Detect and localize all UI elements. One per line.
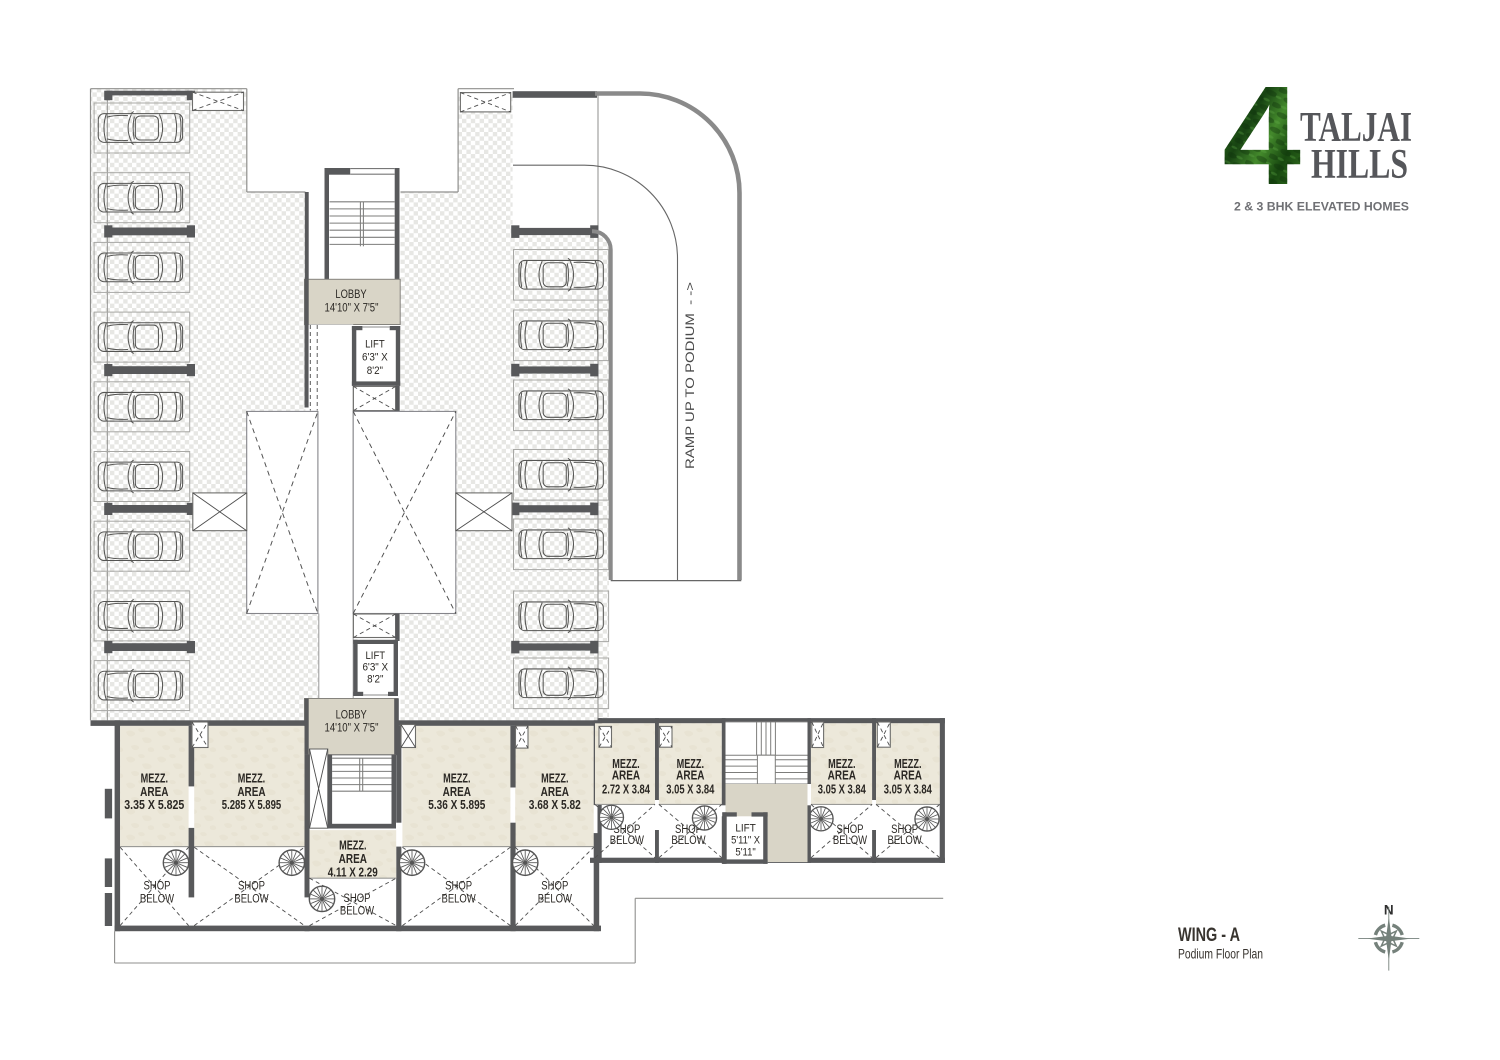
svg-text:4: 4 — [1223, 56, 1301, 214]
svg-text:5.285 X 5.895: 5.285 X 5.895 — [222, 798, 281, 812]
svg-text:2.72 X 3.84: 2.72 X 3.84 — [602, 783, 650, 797]
svg-text:3.05 X 3.84: 3.05 X 3.84 — [666, 783, 714, 797]
svg-text:LOBBY: LOBBY — [335, 287, 366, 301]
svg-text:3.05 X 3.84: 3.05 X 3.84 — [818, 783, 866, 797]
svg-text:BELOW: BELOW — [671, 833, 706, 847]
svg-text:6'3" X: 6'3" X — [362, 352, 388, 364]
svg-text:BELOW: BELOW — [833, 833, 868, 847]
svg-text:WING - A: WING - A — [1178, 925, 1240, 946]
svg-text:BELOW: BELOW — [234, 891, 269, 905]
svg-text:Podium Floor Plan: Podium Floor Plan — [1178, 947, 1263, 962]
svg-text:8'2": 8'2" — [367, 365, 383, 377]
svg-text:MEZZ.: MEZZ. — [238, 771, 265, 785]
svg-text:MEZZ.: MEZZ. — [141, 771, 168, 785]
svg-text:BELOW: BELOW — [538, 891, 573, 905]
svg-text:3.05 X 3.84: 3.05 X 3.84 — [884, 783, 932, 797]
svg-text:AREA: AREA — [237, 785, 265, 799]
svg-text:HILLS: HILLS — [1311, 142, 1408, 188]
svg-text:AREA: AREA — [541, 785, 569, 799]
svg-text:BELOW: BELOW — [140, 891, 175, 905]
svg-text:8'2": 8'2" — [367, 674, 383, 686]
svg-text:3.35 X 5.825: 3.35 X 5.825 — [124, 798, 184, 812]
svg-text:AREA: AREA — [894, 769, 922, 783]
svg-text:MEZZ.: MEZZ. — [339, 839, 366, 853]
svg-text:5.36 X 5.895: 5.36 X 5.895 — [428, 798, 485, 812]
svg-text:BELOW: BELOW — [442, 891, 477, 905]
svg-text:2 & 3 BHK ELEVATED HOMES: 2 & 3 BHK ELEVATED HOMES — [1234, 200, 1409, 214]
svg-text:5'11": 5'11" — [735, 846, 755, 858]
svg-text:LIFT: LIFT — [735, 823, 756, 835]
svg-text:AREA: AREA — [339, 852, 367, 866]
svg-text:LIFT: LIFT — [365, 339, 385, 351]
svg-text:AREA: AREA — [140, 785, 168, 799]
svg-text:LIFT: LIFT — [366, 650, 386, 662]
svg-text:14'10" X 7'5": 14'10" X 7'5" — [325, 301, 379, 315]
svg-text:RAMP UP TO PODIUM - ->: RAMP UP TO PODIUM - -> — [685, 282, 697, 469]
svg-text:3.68 X 5.82: 3.68 X 5.82 — [529, 798, 581, 812]
svg-text:AREA: AREA — [612, 769, 640, 783]
svg-text:BELOW: BELOW — [888, 833, 923, 847]
svg-text:AREA: AREA — [828, 769, 856, 783]
svg-text:AREA: AREA — [676, 769, 704, 783]
svg-text:AREA: AREA — [443, 785, 471, 799]
svg-text:BELOW: BELOW — [610, 833, 645, 847]
svg-text:6'3" X: 6'3" X — [362, 662, 388, 674]
svg-text:BELOW: BELOW — [340, 904, 375, 918]
svg-text:14'10" X 7'5": 14'10" X 7'5" — [325, 720, 379, 734]
svg-text:5'11" X: 5'11" X — [731, 835, 760, 847]
svg-text:4.11 X 2.29: 4.11 X 2.29 — [328, 865, 378, 879]
svg-text:MEZZ.: MEZZ. — [541, 771, 568, 785]
svg-text:MEZZ.: MEZZ. — [443, 771, 470, 785]
